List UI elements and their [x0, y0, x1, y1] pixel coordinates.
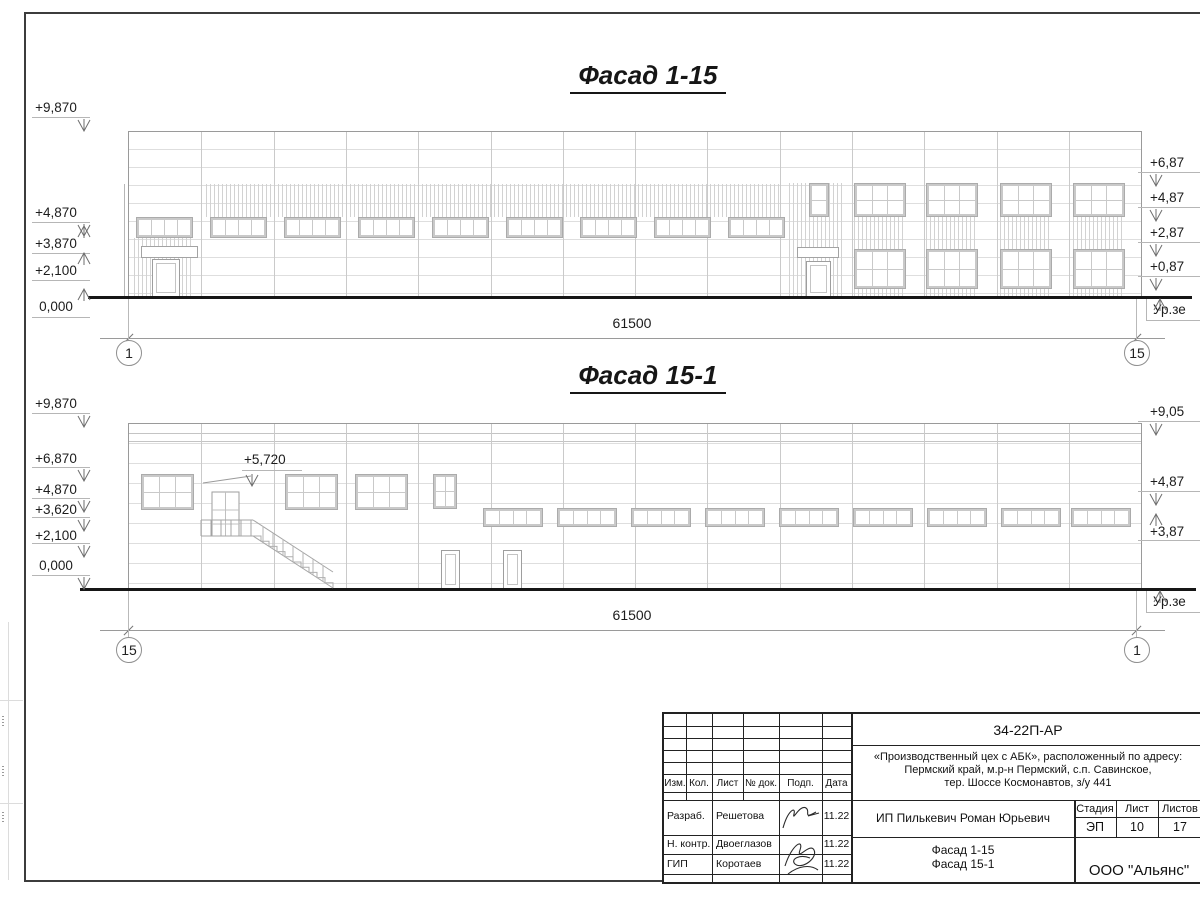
- elevation-leader: [1138, 207, 1200, 208]
- column-grid-line: [346, 424, 347, 590]
- elevation-leader: [1138, 172, 1200, 173]
- window-pane: [1115, 511, 1128, 524]
- elevation-mark-label: +9,05: [1150, 404, 1184, 419]
- column-grid-line: [707, 424, 708, 590]
- ribbon-window: [779, 508, 839, 527]
- window-pane: [945, 201, 960, 215]
- window: [854, 183, 906, 217]
- tb-client: ИП Пилькевич Роман Юрьевич: [852, 812, 1074, 826]
- window-pane: [588, 511, 601, 524]
- ground-label-leader: [1146, 612, 1200, 613]
- elevation-arrow-icon: [1152, 298, 1168, 311]
- window-pane: [812, 201, 826, 215]
- window-pane: [944, 511, 957, 524]
- window-pane: [213, 220, 225, 235]
- tb-sheet-title-line: Фасад 1-15: [852, 844, 1074, 858]
- window-pane: [374, 477, 389, 492]
- axis-line: [128, 591, 129, 638]
- elevation-arrow-icon: [76, 469, 92, 482]
- door-panel: [156, 263, 176, 293]
- window-pane: [1034, 186, 1049, 200]
- window-pane: [857, 252, 872, 269]
- window-pane: [486, 511, 499, 524]
- tb-col-header-list: Лист: [712, 778, 743, 790]
- tb-col-header-kol: Кол.: [686, 778, 712, 790]
- window-pane: [165, 220, 177, 235]
- tb-line: [664, 750, 852, 751]
- window-pane: [810, 511, 823, 524]
- window-pane: [960, 270, 975, 287]
- elevation-mark-label: +3,870: [26, 236, 86, 251]
- column-grid-line: [418, 132, 419, 298]
- window-pane: [1092, 270, 1107, 287]
- wall-hatch: [1073, 217, 1125, 249]
- window-pane: [960, 201, 975, 215]
- window-pane: [596, 220, 608, 235]
- column-grid-line: [924, 132, 925, 298]
- window-pane: [1003, 186, 1018, 200]
- window-pane: [945, 186, 960, 200]
- ribbon-window: [654, 217, 711, 238]
- elevation-mark-label: +0,87: [1150, 259, 1184, 274]
- window-pane: [929, 186, 944, 200]
- elevation-mark-label: +5,720: [244, 452, 286, 467]
- window-pane: [374, 493, 389, 508]
- window-pane: [958, 511, 971, 524]
- ground-line: [88, 296, 1192, 299]
- window-pane: [683, 220, 695, 235]
- wall-hatch: [206, 184, 780, 217]
- window-pane: [823, 511, 836, 524]
- tb-line: [664, 854, 852, 855]
- tb-sheets-header: Листов: [1158, 803, 1200, 816]
- tb-project-line: тер. Шоссе Космонавтов, з/у 441: [854, 777, 1200, 790]
- elevation-leader: [242, 470, 302, 471]
- window-pane: [1076, 252, 1091, 269]
- window-pane: [239, 220, 251, 235]
- elevation-mark-label: +2,87: [1150, 225, 1184, 240]
- elevation-mark-label: +2,100: [26, 263, 86, 278]
- tb-col-header-izm: Изм.: [664, 778, 686, 790]
- elevation-leader: [32, 467, 90, 468]
- window-pane: [708, 511, 721, 524]
- window-pane: [527, 511, 540, 524]
- window-pane: [326, 220, 338, 235]
- tb-col-header-dok: № док.: [743, 778, 779, 790]
- window: [1000, 183, 1052, 217]
- window: [926, 249, 978, 289]
- column-grid-line: [707, 132, 708, 298]
- ribbon-window: [927, 508, 987, 527]
- window-pane: [144, 477, 159, 492]
- window-pane: [390, 477, 405, 492]
- window-pane: [313, 220, 325, 235]
- tb-line: [664, 738, 852, 739]
- window: [141, 474, 194, 510]
- axis-line: [1136, 299, 1137, 341]
- axis-bubble: 1: [116, 340, 142, 366]
- edge-line: [124, 184, 125, 298]
- column-grid-line: [491, 132, 492, 298]
- window-pane: [897, 511, 910, 524]
- tb-line: [664, 800, 1200, 801]
- window-pane: [796, 511, 809, 524]
- window-pane: [300, 220, 312, 235]
- elevation-mark-label: +3,620: [26, 502, 86, 517]
- window-pane: [657, 220, 669, 235]
- elevation-mark-label: +4,87: [1150, 190, 1184, 205]
- elevation-arrow-icon: [1148, 244, 1164, 257]
- window-pane: [560, 511, 573, 524]
- window-pane: [446, 477, 455, 491]
- tb-line: [1074, 817, 1200, 818]
- window-pane: [361, 220, 373, 235]
- elevation-leader: [32, 517, 90, 518]
- tb-col-header-podp: Подп.: [779, 778, 822, 790]
- column-grid-line: [635, 424, 636, 590]
- dimension-line: [100, 338, 1165, 339]
- window-pane: [178, 220, 190, 235]
- window-pane: [1107, 252, 1122, 269]
- window-pane: [1107, 270, 1122, 287]
- window-pane: [857, 270, 872, 287]
- tb-line: [664, 792, 852, 793]
- tb-col-header-data: Дата: [822, 778, 851, 790]
- tb-project-line: Пермский край, м.р-н Пермский, с.п. Сави…: [854, 764, 1200, 777]
- elevation-leader: [32, 317, 90, 318]
- elevation-leader: [32, 498, 90, 499]
- window-pane: [400, 220, 412, 235]
- window-pane: [888, 252, 903, 269]
- elevation-mark-label: +6,87: [1150, 155, 1184, 170]
- elevation-arrow-icon: [1148, 278, 1164, 291]
- window-pane: [609, 220, 621, 235]
- elevation-arrow-icon: [76, 288, 92, 301]
- dimension-label: 61500: [542, 607, 722, 623]
- tb-line: [664, 762, 852, 763]
- elevation-leader: [1138, 421, 1200, 422]
- window-pane: [574, 511, 587, 524]
- elevation-mark-label: +6,870: [26, 451, 86, 466]
- window-pane: [929, 252, 944, 269]
- entrance-canopy: [797, 247, 839, 258]
- window-pane: [1092, 186, 1107, 200]
- window: [1073, 183, 1125, 217]
- ground-label-leader: [1146, 320, 1200, 321]
- window: [809, 183, 829, 217]
- tb-name: Коротаев: [716, 858, 761, 870]
- ribbon-window: [136, 217, 193, 238]
- elevation-leader: [1138, 242, 1200, 243]
- window-pane: [436, 492, 445, 506]
- elevation-arrow-icon: [76, 119, 92, 132]
- elevation-mark-label: +9,870: [26, 396, 86, 411]
- axis-bubble: 15: [1124, 340, 1150, 366]
- window-pane: [1107, 201, 1122, 215]
- window-pane: [870, 511, 883, 524]
- column-grid-line: [563, 424, 564, 590]
- elevation-leader: [32, 575, 90, 576]
- window-pane: [1045, 511, 1058, 524]
- tb-role: Н. контр.: [667, 838, 710, 850]
- window-pane: [1019, 270, 1034, 287]
- window-pane: [1107, 186, 1122, 200]
- tb-name: Двоеглазов: [716, 838, 772, 850]
- window-pane: [374, 220, 386, 235]
- ribbon-window: [284, 217, 341, 238]
- column-grid-line: [635, 132, 636, 298]
- window-pane: [583, 220, 595, 235]
- window-pane: [358, 477, 373, 492]
- elevation-mark-label: +4,870: [26, 482, 86, 497]
- tb-line: [852, 837, 1200, 838]
- axis-bubble: 15: [116, 637, 142, 663]
- window-pane: [1034, 270, 1049, 287]
- elevation-leader: [32, 543, 90, 544]
- drawing-sheet: Фасад 1-15 Фасад 15-1 +9,870+4,870+3,870…: [0, 0, 1200, 900]
- ribbon-window: [506, 217, 563, 238]
- window-pane: [1034, 252, 1049, 269]
- tb-line: [664, 726, 852, 727]
- door: [441, 550, 460, 589]
- elevation-arrow-icon: [1148, 209, 1164, 222]
- window: [355, 474, 408, 510]
- window-pane: [509, 220, 521, 235]
- window-pane: [144, 493, 159, 508]
- window-pane: [436, 477, 445, 491]
- tb-project-line: «Производственный цех с АБК», расположен…: [854, 751, 1200, 764]
- elevation-mark-label: +9,870: [26, 100, 86, 115]
- door: [806, 261, 831, 297]
- window: [1073, 249, 1125, 289]
- axis-line: [128, 299, 129, 341]
- tb-organization: ООО "Альянс": [1074, 862, 1200, 879]
- window-pane: [1088, 511, 1101, 524]
- window-pane: [500, 511, 513, 524]
- ground-label-leader: [1146, 591, 1147, 612]
- window-pane: [226, 220, 238, 235]
- tb-sheet-value: 10: [1116, 820, 1158, 834]
- column-grid-line: [274, 132, 275, 298]
- column-grid-line: [924, 424, 925, 590]
- elevation-arrow-icon: [1152, 590, 1168, 603]
- column-grid-line: [780, 424, 781, 590]
- window-pane: [1003, 270, 1018, 287]
- elevation-leader: [32, 117, 90, 118]
- window: [926, 183, 978, 217]
- window-pane: [1019, 252, 1034, 269]
- column-grid-line: [201, 132, 202, 298]
- window-pane: [1004, 511, 1017, 524]
- window: [433, 474, 457, 509]
- wall-hatch: [854, 217, 906, 249]
- elevation-leader: [1138, 491, 1200, 492]
- column-grid-line: [852, 132, 853, 298]
- window-pane: [474, 220, 486, 235]
- window-pane: [548, 220, 560, 235]
- tb-doc-code: 34-22П-АР: [852, 722, 1200, 738]
- tb-line: [852, 745, 1200, 746]
- ribbon-window: [483, 508, 543, 527]
- window-pane: [722, 511, 735, 524]
- window-pane: [1003, 252, 1018, 269]
- tb-line: [822, 714, 823, 882]
- column-grid-line: [491, 424, 492, 590]
- window-pane: [176, 477, 191, 492]
- column-grid-line: [1069, 424, 1070, 590]
- window-pane: [757, 220, 769, 235]
- window-pane: [856, 511, 869, 524]
- tb-line: [664, 835, 852, 836]
- window-pane: [435, 220, 447, 235]
- signature: [780, 830, 822, 882]
- window-pane: [744, 220, 756, 235]
- tb-role: ГИП: [667, 858, 688, 870]
- elevation-mark-label: 0,000: [26, 299, 86, 314]
- column-grid-line: [1069, 132, 1070, 298]
- window-pane: [930, 511, 943, 524]
- door-panel: [445, 554, 456, 585]
- window-pane: [857, 186, 872, 200]
- window-pane: [1003, 201, 1018, 215]
- exterior-stair: [195, 470, 345, 595]
- title-block: Изм. Кол. Лист № док. Подп. Дата Разраб.…: [662, 712, 1200, 884]
- column-grid-line: [418, 424, 419, 590]
- window-pane: [736, 511, 749, 524]
- window-pane: [1102, 511, 1115, 524]
- window-pane: [1032, 511, 1045, 524]
- window-pane: [971, 511, 984, 524]
- axis-bubble: 1: [1124, 637, 1150, 663]
- column-grid-line: [997, 424, 998, 590]
- elevation-mark-label: 0,000: [26, 558, 86, 573]
- elevation-leader: [32, 280, 90, 281]
- window-pane: [884, 511, 897, 524]
- dimension-label: 61500: [542, 315, 722, 331]
- window-pane: [1019, 186, 1034, 200]
- tb-line: [664, 774, 852, 775]
- elevation-arrow-icon: [1148, 513, 1164, 526]
- column-grid-line: [780, 132, 781, 298]
- ribbon-window: [580, 217, 637, 238]
- tb-line: [664, 874, 852, 875]
- window-pane: [888, 201, 903, 215]
- window-pane: [873, 201, 888, 215]
- elevation-mark-label: +3,87: [1150, 524, 1184, 539]
- tb-stage-value: ЭП: [1074, 820, 1116, 834]
- elevation-mark-label: +4,870: [26, 205, 86, 220]
- elevation-arrow-icon: [76, 252, 92, 265]
- elevation-arrow-icon: [1148, 493, 1164, 506]
- window-pane: [152, 220, 164, 235]
- tb-sheets-value: 17: [1158, 820, 1200, 834]
- window-pane: [601, 511, 614, 524]
- door: [503, 550, 522, 589]
- tb-name: Решетова: [716, 810, 764, 822]
- window: [1000, 249, 1052, 289]
- window-pane: [670, 220, 682, 235]
- elevation-leader: [1138, 540, 1200, 541]
- window: [854, 249, 906, 289]
- axis-line: [1136, 591, 1137, 638]
- door-panel: [507, 554, 518, 585]
- window-pane: [448, 220, 460, 235]
- window-pane: [888, 270, 903, 287]
- window-pane: [446, 492, 455, 506]
- elevation-leader: [32, 413, 90, 414]
- window-pane: [812, 186, 826, 200]
- elevation-arrow-icon: [1148, 174, 1164, 187]
- window-pane: [929, 201, 944, 215]
- wall-hatch: [1000, 217, 1052, 249]
- window-pane: [1076, 201, 1091, 215]
- elevation-leader: [32, 222, 90, 223]
- tb-date: 11.22: [822, 810, 851, 822]
- dimension-line: [100, 630, 1165, 631]
- ribbon-window: [705, 508, 765, 527]
- tb-line: [712, 714, 713, 882]
- window-pane: [945, 270, 960, 287]
- window-pane: [675, 511, 688, 524]
- window-pane: [749, 511, 762, 524]
- window-pane: [770, 220, 782, 235]
- window-pane: [160, 493, 175, 508]
- tb-date: 11.22: [822, 858, 851, 870]
- elevation-arrow-icon: [76, 545, 92, 558]
- ribbon-window: [432, 217, 489, 238]
- window-pane: [1092, 252, 1107, 269]
- window-pane: [622, 220, 634, 235]
- window-pane: [662, 511, 675, 524]
- tb-date: 11.22: [822, 838, 851, 850]
- window-pane: [514, 511, 527, 524]
- ribbon-window: [557, 508, 617, 527]
- elevation-arrow-icon: [76, 577, 92, 590]
- elevation-arrow-icon: [1148, 423, 1164, 436]
- window-pane: [857, 201, 872, 215]
- window-pane: [945, 252, 960, 269]
- tb-stage-header: Стадия: [1074, 803, 1116, 816]
- window-pane: [648, 511, 661, 524]
- window-pane: [634, 511, 647, 524]
- window-pane: [287, 220, 299, 235]
- window-pane: [873, 252, 888, 269]
- window-pane: [176, 493, 191, 508]
- ribbon-window: [1001, 508, 1061, 527]
- wall-hatch: [926, 217, 978, 249]
- elevation-leader: [1138, 276, 1200, 277]
- window-pane: [1019, 201, 1034, 215]
- window-pane: [960, 186, 975, 200]
- window-pane: [252, 220, 264, 235]
- ribbon-window: [853, 508, 913, 527]
- window-pane: [1076, 186, 1091, 200]
- elevation-mark-label: +4,87: [1150, 474, 1184, 489]
- ground-label-leader: [1146, 299, 1147, 320]
- window-pane: [696, 220, 708, 235]
- ribbon-window: [1071, 508, 1131, 527]
- window-pane: [731, 220, 743, 235]
- window-pane: [782, 511, 795, 524]
- window-pane: [160, 477, 175, 492]
- window-pane: [139, 220, 151, 235]
- column-grid-line: [346, 132, 347, 298]
- window-pane: [387, 220, 399, 235]
- column-grid-line: [997, 132, 998, 298]
- window-pane: [1092, 201, 1107, 215]
- tb-role: Разраб.: [667, 810, 705, 822]
- window-pane: [929, 270, 944, 287]
